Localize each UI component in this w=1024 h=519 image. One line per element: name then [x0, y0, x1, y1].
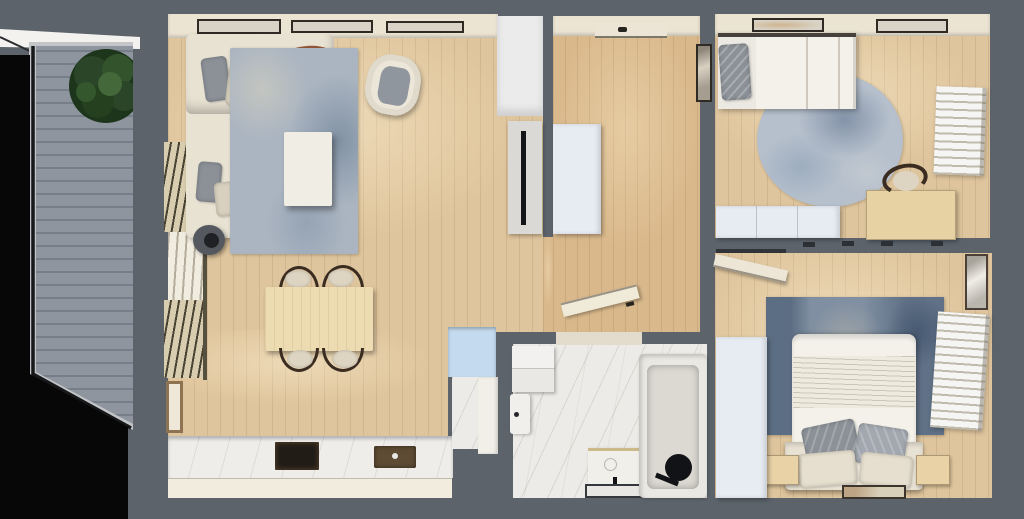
bedroom2-pillow-cream-2 — [858, 451, 913, 488]
dining-chair-3 — [279, 348, 319, 372]
cooktop — [275, 442, 319, 470]
hallway-wardrobe — [553, 124, 601, 234]
chair-seat — [285, 270, 311, 288]
window-top-1 — [197, 19, 281, 34]
kettle — [204, 233, 219, 248]
tall-white-cabinet — [497, 16, 543, 116]
balcony-blind-lower — [164, 300, 206, 378]
bedroom1-bed-seam-2 — [838, 35, 840, 109]
floor-mat — [585, 484, 647, 498]
dining-chair-4 — [322, 348, 364, 372]
kitchen-blue-cabinet — [448, 327, 496, 377]
sink-faucet — [392, 453, 398, 459]
kitchen-white-column — [478, 377, 498, 454]
entry-door — [595, 23, 667, 38]
window-top-2 — [291, 20, 373, 33]
toilet-button — [514, 412, 519, 417]
bedroom2-floor-artwork — [842, 485, 906, 499]
bedroom2-wardrobe — [716, 337, 767, 498]
bedroom2-bed-throw — [793, 356, 915, 408]
passage-floor — [543, 237, 553, 332]
washer-column — [512, 346, 554, 392]
bedroom1-desk-chair-seat — [893, 171, 919, 191]
bedroom2-pillow-cream-1 — [797, 450, 858, 489]
bedroom2-door-rail — [716, 249, 786, 253]
bedroom2-nightstand-left — [763, 455, 799, 485]
bedroom1-pillow — [718, 43, 752, 101]
chair-seat — [287, 350, 313, 368]
bedroom1-window-2 — [876, 19, 948, 33]
balcony — [0, 0, 170, 519]
dining-chair-2 — [322, 265, 364, 289]
bedroom1-radiator-blind — [933, 86, 986, 176]
wall-marks — [803, 242, 815, 247]
chair-seat — [332, 350, 358, 368]
bedroom1-bed-seam-1 — [806, 35, 808, 109]
coffee-table — [284, 132, 332, 206]
vanity-basin — [604, 458, 617, 471]
chair-seat — [328, 269, 354, 287]
floor-plan-canvas — [0, 0, 1024, 519]
bedroom2-nightstand-right — [916, 455, 950, 485]
kitchen-lower-cabinets — [168, 478, 452, 498]
leaning-mirror — [166, 381, 183, 433]
bedroom2-radiator-blind — [930, 311, 990, 430]
bedroom1-low-wardrobe — [716, 206, 840, 238]
bedroom2-wall-art — [965, 254, 988, 310]
bathroom-threshold — [556, 332, 642, 345]
tv-screen — [521, 131, 526, 225]
bedroom1-window-1 — [752, 18, 824, 32]
dining-table — [265, 287, 373, 351]
bedroom1-desk — [866, 190, 956, 240]
kitchen-marble-column — [452, 377, 478, 449]
hallway-wall-art — [696, 44, 712, 102]
toilet — [510, 394, 530, 434]
entry-door-handle — [618, 27, 627, 32]
plant — [69, 49, 143, 123]
window-top-3 — [386, 21, 464, 33]
